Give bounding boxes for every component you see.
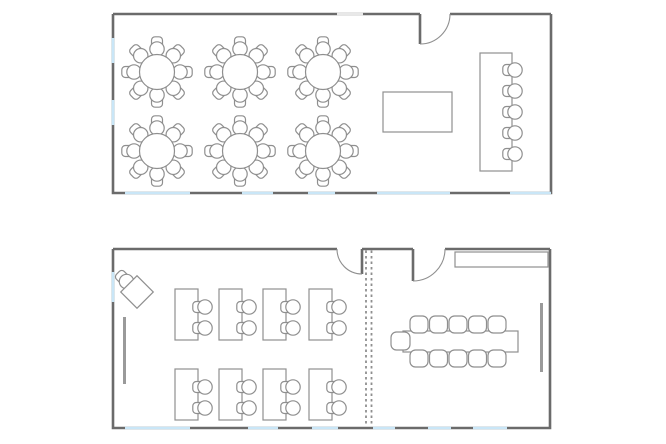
chair	[281, 401, 300, 415]
chair-seat	[286, 401, 300, 415]
teacher-desk-with-chair	[113, 268, 153, 308]
round-table	[140, 55, 175, 90]
chair	[205, 144, 224, 158]
student-desk-with-chairs	[175, 289, 212, 340]
round-table-with-chairs	[205, 116, 275, 186]
chair	[281, 380, 300, 394]
conference-chair	[488, 350, 506, 367]
chair	[193, 401, 212, 415]
chair	[256, 144, 275, 158]
conference-chair	[430, 350, 448, 367]
student-desk-with-chairs	[219, 369, 256, 420]
chair	[233, 37, 247, 56]
round-table	[223, 134, 258, 169]
floor-plans-svg	[0, 0, 666, 444]
chair-seat	[198, 401, 212, 415]
student-desk-with-chairs	[309, 289, 346, 340]
chair	[193, 321, 212, 335]
chair	[339, 144, 358, 158]
chair	[237, 321, 256, 335]
student-desk-with-chairs	[219, 289, 256, 340]
chair	[288, 65, 307, 79]
door-swing-arc	[420, 14, 450, 44]
conference-chair	[410, 350, 428, 367]
round-table	[223, 55, 258, 90]
chair	[233, 116, 247, 135]
chair-seat	[286, 300, 300, 314]
conference-chair	[449, 350, 467, 367]
chair	[173, 144, 192, 158]
chair	[173, 65, 192, 79]
chair	[205, 65, 224, 79]
chair	[237, 380, 256, 394]
chair	[281, 300, 300, 314]
chair-seat	[508, 84, 522, 98]
chair	[316, 116, 330, 135]
conference-chair	[391, 332, 410, 350]
chair	[256, 65, 275, 79]
conference-chair	[410, 316, 428, 333]
conference-table-with-chairs	[391, 316, 518, 367]
chair	[150, 116, 164, 135]
door	[413, 249, 445, 281]
chair	[193, 300, 212, 314]
floor-plans-canvas	[0, 0, 666, 444]
round-table-with-chairs	[288, 116, 358, 186]
chair	[316, 167, 330, 186]
door	[337, 249, 362, 274]
chair-seat	[332, 401, 346, 415]
chair	[150, 37, 164, 56]
chair	[316, 88, 330, 107]
chair	[327, 321, 346, 335]
rect-table	[383, 92, 452, 132]
student-desk-with-chairs	[263, 289, 300, 340]
chair	[233, 88, 247, 107]
chair-seat	[508, 147, 522, 161]
chair	[316, 37, 330, 56]
door	[420, 14, 450, 44]
chair	[503, 63, 522, 77]
door-swing-arc	[413, 249, 445, 281]
banquet-room-floor-plan	[113, 14, 551, 193]
chair-seat	[508, 126, 522, 140]
chair	[327, 401, 346, 415]
chair-seat	[286, 380, 300, 394]
chair-seat	[286, 321, 300, 335]
chair-seat	[332, 300, 346, 314]
conference-chair	[469, 350, 487, 367]
chair	[233, 167, 247, 186]
long-table-with-chairs	[480, 53, 522, 171]
chair-seat	[332, 321, 346, 335]
chair	[281, 321, 300, 335]
student-desk-with-chairs	[175, 369, 212, 420]
chair	[327, 380, 346, 394]
chair-seat	[198, 321, 212, 335]
chair-seat	[508, 63, 522, 77]
chair	[339, 65, 358, 79]
chair	[237, 300, 256, 314]
round-table	[306, 55, 341, 90]
chair	[237, 401, 256, 415]
round-table	[306, 134, 341, 169]
wall-shelf	[455, 252, 548, 267]
classroom-and-meeting-room-floor-plan	[113, 249, 550, 428]
student-desk-with-chairs	[309, 369, 346, 420]
conference-chair	[488, 316, 506, 333]
chair-seat	[508, 105, 522, 119]
round-table-with-chairs	[122, 116, 192, 186]
chair-seat	[332, 380, 346, 394]
chair	[150, 167, 164, 186]
chair	[150, 88, 164, 107]
round-table-with-chairs	[205, 37, 275, 107]
chair-seat	[242, 380, 256, 394]
chair	[288, 144, 307, 158]
chair-seat	[198, 380, 212, 394]
chair	[503, 105, 522, 119]
conference-table	[403, 331, 518, 352]
chair	[122, 144, 141, 158]
round-table-with-chairs	[122, 37, 192, 107]
chair	[193, 380, 212, 394]
chair	[122, 65, 141, 79]
chair	[503, 84, 522, 98]
chair	[327, 300, 346, 314]
chair-seat	[242, 401, 256, 415]
door-swing-arc	[337, 249, 362, 274]
conference-chair	[430, 316, 448, 333]
chair	[503, 126, 522, 140]
conference-chair	[449, 316, 467, 333]
chair-seat	[198, 300, 212, 314]
student-desk-with-chairs	[263, 369, 300, 420]
round-table-with-chairs	[288, 37, 358, 107]
chair-seat	[242, 300, 256, 314]
chair	[503, 147, 522, 161]
round-table	[140, 134, 175, 169]
chair-seat	[242, 321, 256, 335]
conference-chair	[469, 316, 487, 333]
